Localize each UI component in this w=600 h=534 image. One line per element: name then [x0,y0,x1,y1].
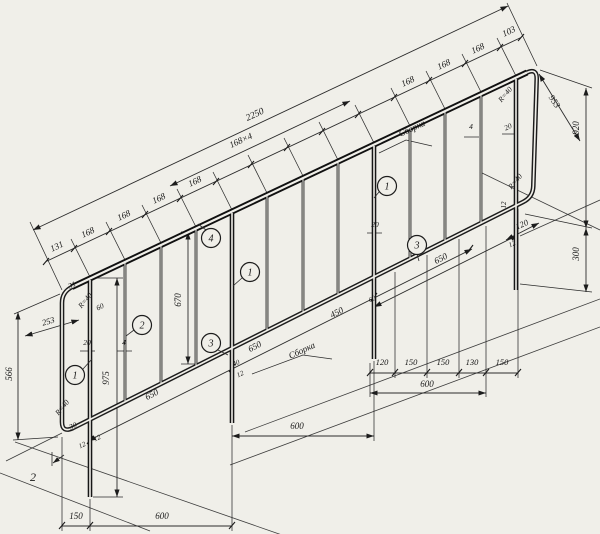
callout-3: 3 [408,236,427,255]
dim-chain-150: 150 [496,357,510,367]
dim-chain-150: 150 [405,357,419,367]
dim-picket-step: 168 [80,225,97,240]
railing-frame [62,71,537,497]
callout-2: 2 [133,316,152,335]
dim-step-last: 103 [501,24,518,39]
callout-4: 4 [202,229,221,248]
dim-right-end-diagonal: 953 [547,93,563,110]
dim-weld-60: 60 [95,301,106,312]
dim-picket-step: 168 [151,191,168,206]
dim-chain-150: 150 [437,357,451,367]
dim-picket-step: 168 [436,57,453,72]
technical-drawing-sheet: 2250 168×4 131 168 168 168 168 168 168 1… [0,0,600,534]
dim-seg-450: 450 [328,305,345,320]
dim-right-end-height: 920 [571,121,581,135]
railing-axonometric-drawing: 2250 168×4 131 168 168 168 168 168 168 1… [0,0,600,534]
dim-picket-step: 168 [116,208,133,223]
dim-weld-4: 4 [469,122,473,131]
callout-1-number: 1 [73,371,78,382]
dim-picket-step: 168 [187,174,204,189]
dim-offset-20: 20 [503,121,514,132]
dim-picket-length: 670 [173,293,183,307]
dim-corner-radius: R=40 [505,172,524,192]
dim-picket-step: 168 [470,41,487,56]
section-mark: 2 [30,470,36,484]
dim-gap-12: 12 [77,440,87,450]
callout-2-number: 2 [140,321,145,332]
callout-3: 3 [202,334,221,353]
dim-gap-12: 12 [235,369,245,379]
dim-post-length: 975 [101,371,111,385]
callout-1: 1 [378,177,397,196]
callout-4-number: 4 [209,234,214,245]
dim-picket-step: 168 [400,74,417,89]
dim-left-end-height: 566 [4,367,14,381]
dim-post-below: 300 [571,247,581,262]
assembly-note: Сборка [287,340,317,361]
dim-chain-120: 120 [376,357,390,367]
dim-picket-group: 168×4 [228,130,254,149]
dim-base-150: 150 [69,511,83,521]
callout-1-number: 1 [385,182,390,193]
dim-bay-650: 650 [432,251,449,266]
dim-step-first: 131 [49,239,65,254]
dim-offset-20: 20 [83,338,91,347]
callout-1: 1 [66,366,85,385]
dim-left-end-diagonal: 253 [41,315,56,328]
callout-3-number: 3 [208,339,214,350]
dim-offset-20: 20 [371,220,379,229]
picket-highlights [90,79,516,497]
dim-bay-600: 600 [420,379,434,389]
callout-1-number: 1 [248,268,253,279]
dim-bay-600: 600 [155,511,169,521]
dim-corner-radius: R=40 [52,398,71,418]
dim-weld-4: 4 [122,338,126,347]
dim-bay-600: 600 [290,421,304,431]
assembly-note: Сборка [397,118,427,139]
callout-1: 1 [241,263,260,282]
callout-3-number: 3 [414,241,420,252]
dim-chain-130: 130 [466,357,480,367]
dim-gap-12: 12 [500,201,508,209]
